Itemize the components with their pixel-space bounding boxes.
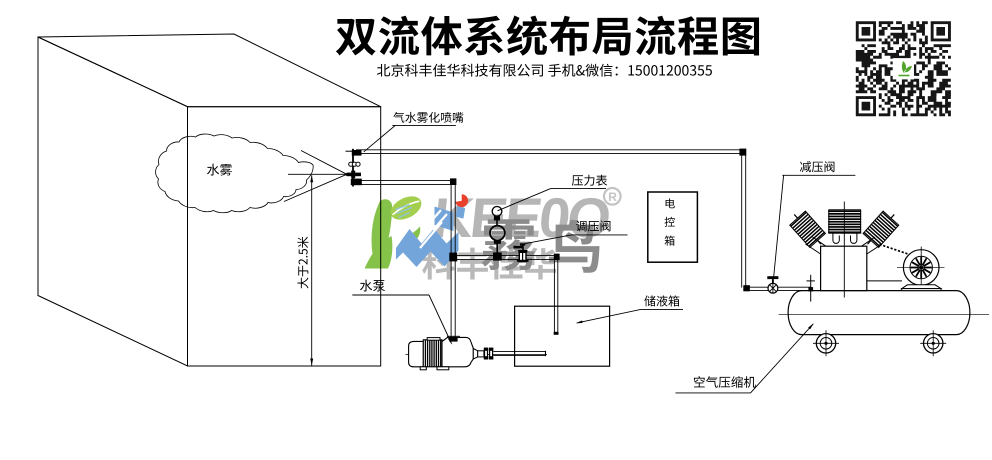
svg-text:R: R xyxy=(608,190,617,204)
